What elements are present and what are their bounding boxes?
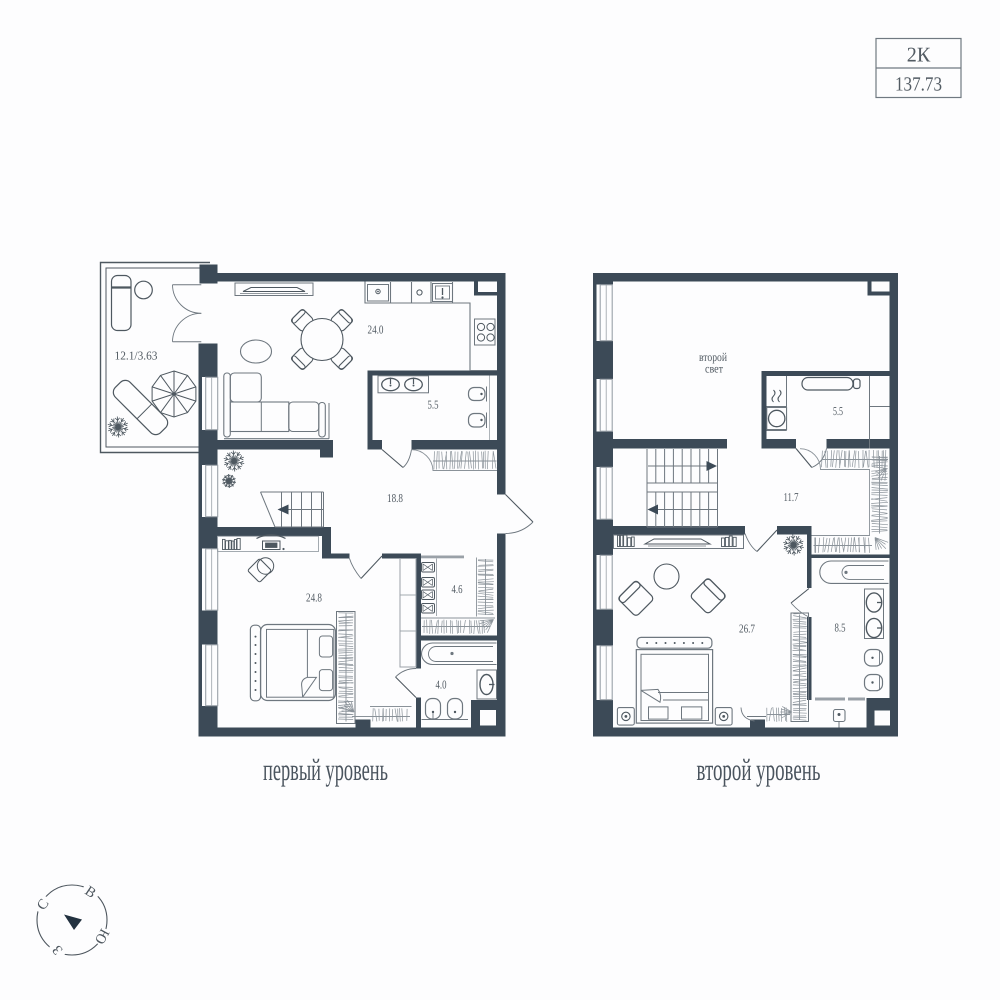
svg-text:8.5: 8.5 (835, 621, 846, 635)
svg-text:4.0: 4.0 (436, 678, 447, 692)
svg-text:второй уровень: второй уровень (697, 752, 821, 787)
svg-text:18.8: 18.8 (387, 491, 403, 505)
svg-text:137.73: 137.73 (895, 74, 942, 96)
svg-text:12.1/3.63: 12.1/3.63 (115, 348, 158, 362)
svg-text:5.5: 5.5 (428, 398, 439, 412)
svg-text:5.5: 5.5 (833, 404, 843, 418)
svg-text:4.6: 4.6 (452, 582, 463, 596)
svg-text:24.8: 24.8 (306, 591, 322, 605)
svg-text:2К: 2К (907, 43, 931, 67)
svg-text:26.7: 26.7 (739, 622, 755, 636)
svg-text:свет: свет (705, 362, 724, 376)
svg-text:11.7: 11.7 (784, 490, 799, 504)
svg-text:первый уровень: первый уровень (263, 752, 388, 787)
svg-text:24.0: 24.0 (368, 323, 384, 337)
